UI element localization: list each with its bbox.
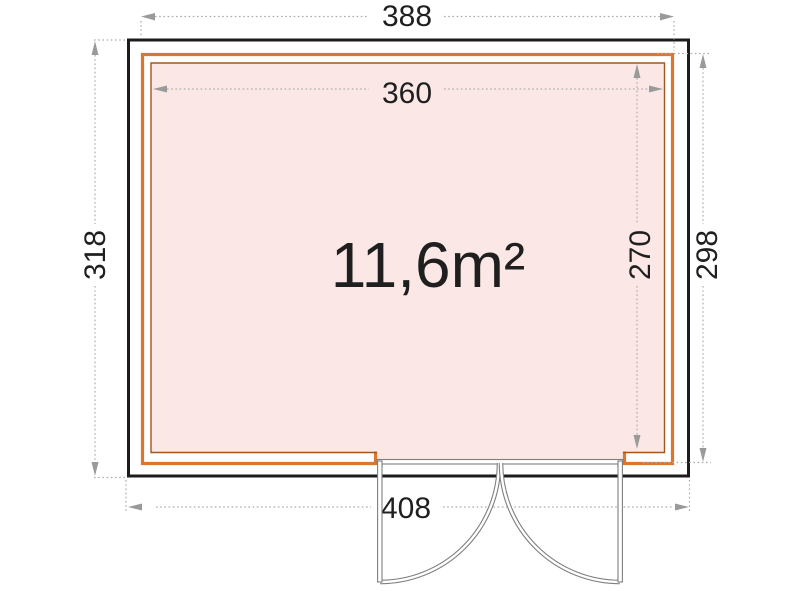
dim-arrow-up: [700, 54, 707, 68]
dimension-label-top-inner: 360: [382, 77, 432, 110]
door-swing-arc-right: [501, 463, 620, 582]
dim-arrow-down: [92, 462, 99, 476]
dimension-label-right-inner: 270: [624, 230, 657, 280]
floor-plan: 388 360 318 298 270: [0, 0, 800, 591]
dimension-top-outer: 388: [141, 0, 674, 51]
door-panel-left: [378, 461, 382, 582]
dimension-bottom-width: 408: [126, 480, 690, 525]
dim-arrow-left: [141, 13, 155, 21]
door-panel-right: [618, 461, 622, 582]
dim-arrow-left: [128, 504, 142, 511]
dimension-label-right-outer: 298: [691, 230, 724, 280]
dim-arrow-up: [92, 41, 99, 55]
floor-plan-canvas: 388 360 318 298 270: [0, 0, 800, 591]
dim-arrow-right: [660, 13, 674, 21]
dimension-label-top-outer: 388: [382, 0, 432, 33]
dimension-left-height: 318: [79, 40, 126, 478]
area-label: 11,6m²: [331, 229, 525, 301]
dimension-label-bottom-width: 408: [381, 492, 431, 525]
dim-arrow-down: [700, 448, 707, 462]
dim-arrow-right: [675, 504, 689, 511]
dimension-label-left-height: 318: [79, 230, 112, 280]
